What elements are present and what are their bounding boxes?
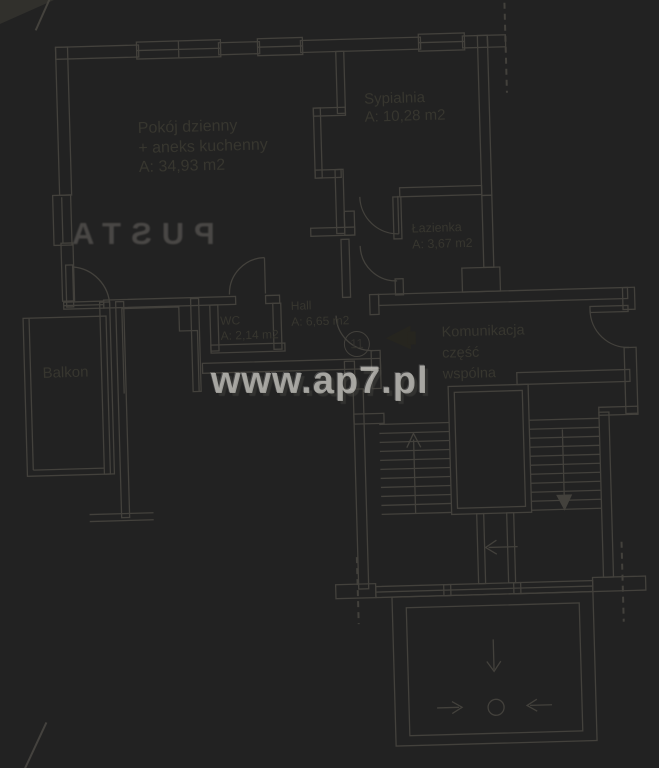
hall-area: A: 6,65 m2 [291,313,349,330]
common-area-line1: Komunikacja [441,320,525,343]
vestibule-left-arrow [485,540,517,555]
label-balcony: Balkon [42,364,88,382]
bedroom-area: A: 10,28 m2 [364,106,445,126]
porch-circle [488,699,504,715]
label-living-room: Pokój dzienny + aneks kuchenny A: 34,93 … [138,115,269,177]
porch-down-arrow [486,639,501,671]
porch-symbols [435,638,552,717]
entrance-arrow-icon [385,325,416,350]
watermark-text: www.ap7.pl [211,360,429,403]
floorplan-photo: PUSTA [0,0,659,768]
label-bathroom: Łazienka A: 3,67 m2 [411,220,472,253]
stairs-up-arrow [406,433,422,513]
wc-name: WC [220,312,278,329]
wc-area: A: 2,14 m2 [220,327,278,344]
living-room-area: A: 34,93 m2 [139,154,269,177]
bedroom-name: Sypialnia [364,88,445,108]
living-room-name: Pokój dzienny [138,115,268,138]
common-area-line2: część [442,341,526,364]
hall-name: Hall [291,297,349,314]
porch-left-arrow [527,699,552,712]
living-room-name2: + aneks kuchenny [138,135,268,158]
common-area-line3: wspólna [443,362,527,385]
exterior-walls [55,35,512,301]
label-wc: WC A: 2,14 m2 [220,312,279,344]
bathroom-name: Łazienka [411,220,472,237]
porch-right-arrow [437,701,462,714]
staircase [379,418,603,586]
label-bedroom: Sypialnia A: 10,28 m2 [364,88,446,126]
label-hall: Hall A: 6,65 m2 [291,297,350,330]
balcony-name: Balkon [42,364,88,382]
label-common-area: Komunikacja część wspólna [441,320,526,385]
bathroom-area: A: 3,67 m2 [412,235,473,252]
